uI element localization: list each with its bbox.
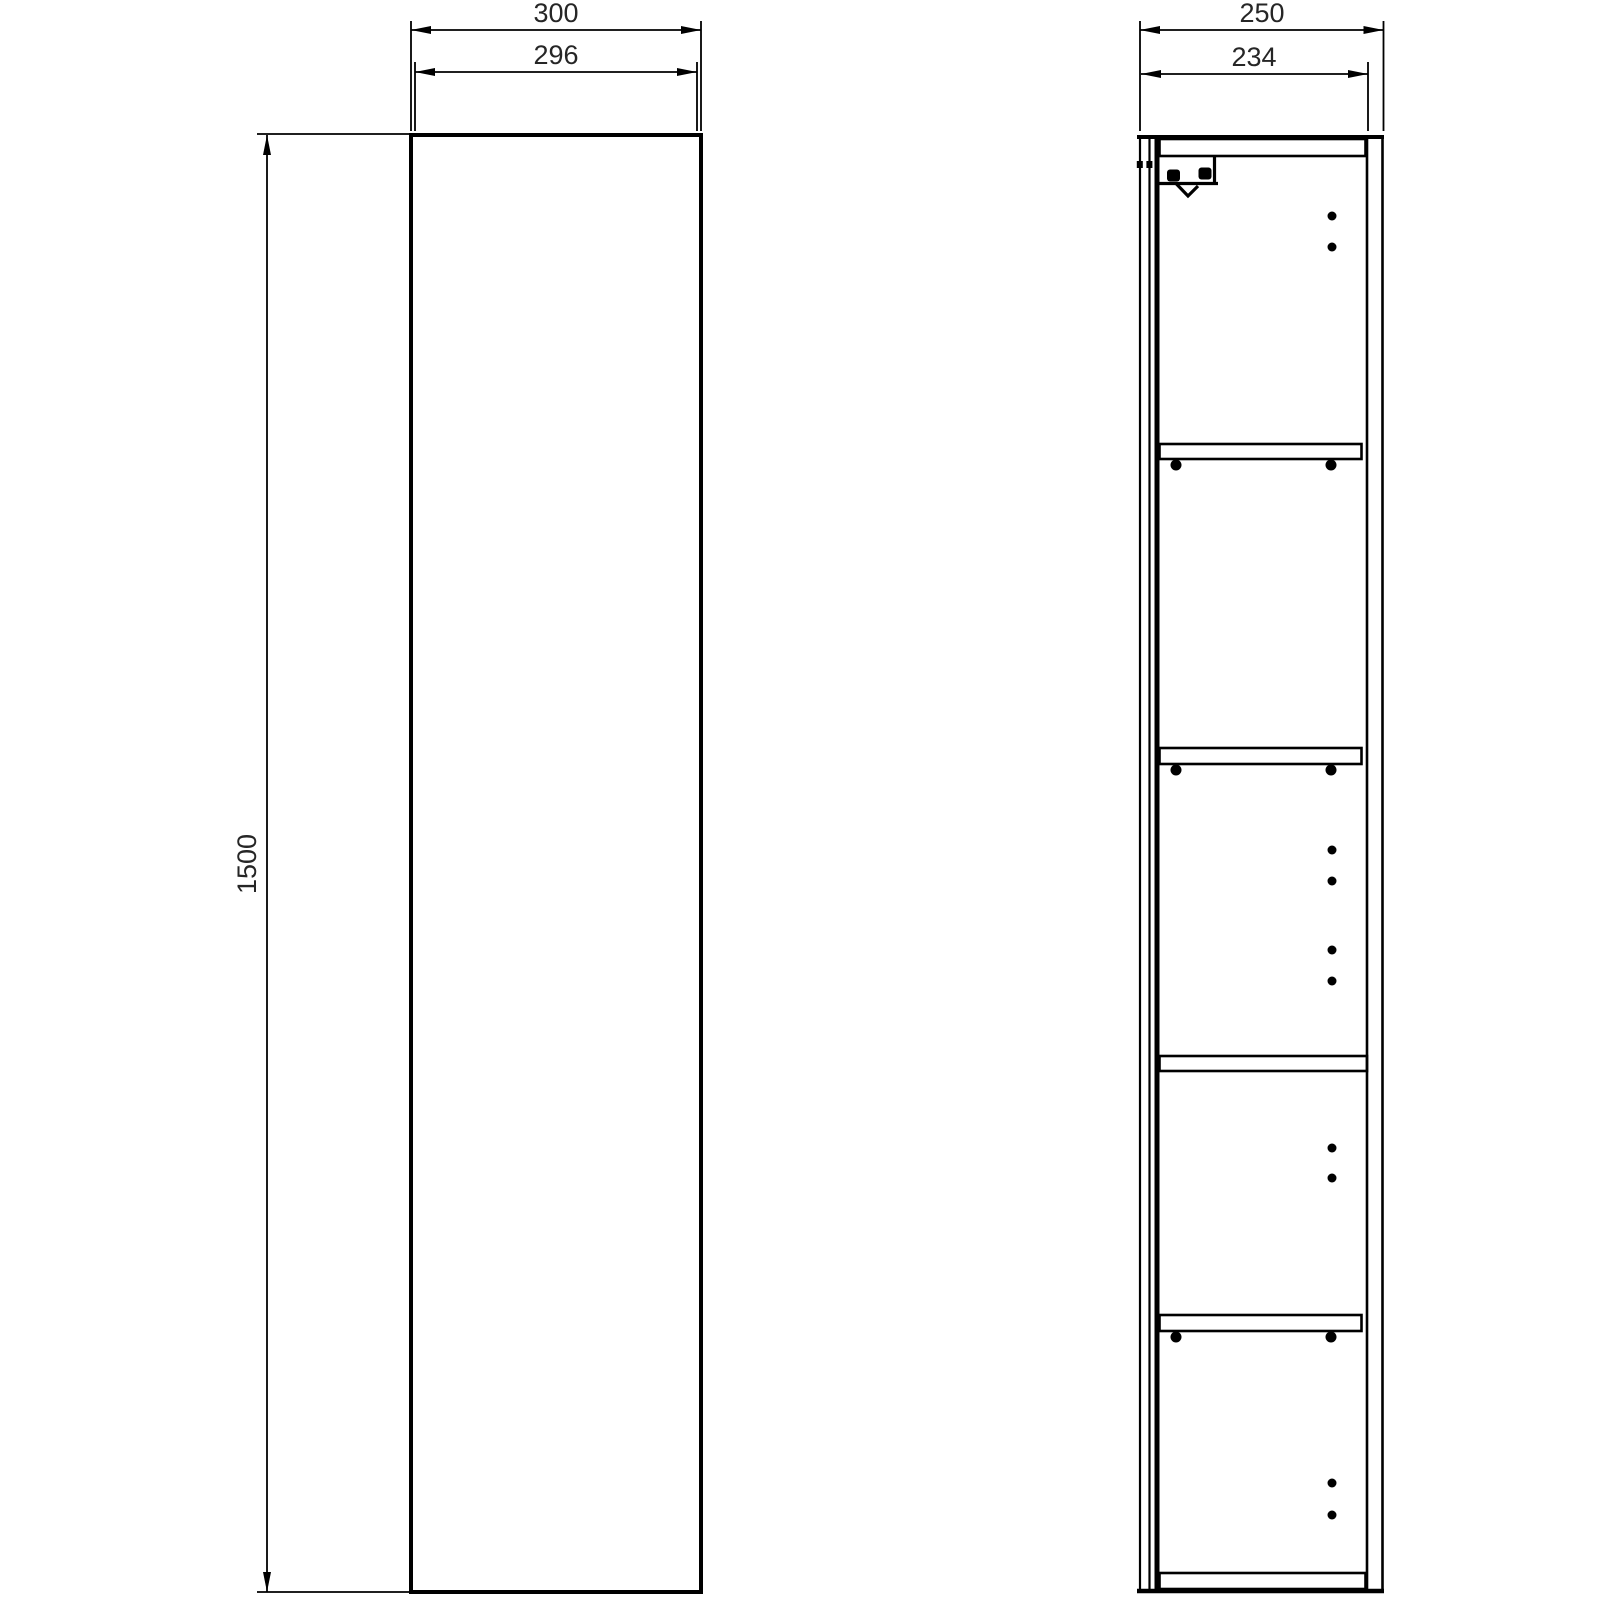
arrowhead-bottom xyxy=(263,1572,271,1592)
door-width-value: 296 xyxy=(533,40,578,70)
extension-lines xyxy=(1140,21,1384,131)
door-panel-section xyxy=(1140,137,1150,1591)
arrowhead-left xyxy=(1141,70,1161,78)
bracket-screw xyxy=(1167,170,1180,182)
shelf-pin xyxy=(1326,765,1337,776)
shelf-pin xyxy=(1326,460,1337,471)
shelf-pin xyxy=(1171,765,1182,776)
shelf-pin-holes xyxy=(1328,212,1337,1520)
pin-hole xyxy=(1328,1479,1337,1488)
shelf-pin xyxy=(1171,1332,1182,1343)
overall-depth-value: 250 xyxy=(1239,0,1284,28)
cabinet-technical-drawing: 300 296 1500 250 xyxy=(0,0,1600,1600)
arrowhead-right xyxy=(681,26,701,34)
drawing-sheet: 300 296 1500 250 xyxy=(0,0,1600,1600)
arrowhead-left xyxy=(411,26,431,34)
overall-width-value: 300 xyxy=(533,0,578,28)
shelf-pin xyxy=(1171,460,1182,471)
pin-hole xyxy=(1328,977,1337,986)
door-fixing-detail xyxy=(1137,161,1153,168)
side-section-view: 250 234 xyxy=(1137,0,1384,1591)
pin-hole xyxy=(1328,877,1337,886)
back-panel xyxy=(1367,137,1383,1591)
top-panel xyxy=(1160,139,1366,156)
internal-depth-value: 234 xyxy=(1231,42,1276,72)
bottom-panel xyxy=(1160,1573,1366,1589)
dimension-internal-depth: 234 xyxy=(1141,42,1368,131)
bracket-screw xyxy=(1199,168,1212,180)
dimension-door-width: 296 xyxy=(415,40,697,131)
arrowhead-left xyxy=(1140,26,1160,34)
arrowhead-right xyxy=(1348,70,1368,78)
shelf-3-fixed xyxy=(1160,1056,1368,1071)
shelf-1 xyxy=(1160,444,1362,471)
shelf-pin xyxy=(1326,1332,1337,1343)
wall-mount-bracket xyxy=(1159,156,1218,196)
pin-hole xyxy=(1328,846,1337,855)
arrowhead-right xyxy=(677,68,697,76)
bracket-adjustment-cam xyxy=(1176,184,1198,197)
pin-hole xyxy=(1328,243,1337,252)
extension-lines xyxy=(257,134,409,1592)
front-view-outline xyxy=(411,135,701,1592)
shelf-2 xyxy=(1160,748,1362,776)
pin-hole xyxy=(1328,946,1337,955)
pin-hole xyxy=(1328,212,1337,221)
shelf-4 xyxy=(1160,1315,1362,1343)
pin-hole xyxy=(1328,1144,1337,1153)
height-value: 1500 xyxy=(232,834,262,894)
arrowhead-right xyxy=(1364,26,1384,34)
dimension-height: 1500 xyxy=(232,134,409,1592)
pin-hole xyxy=(1328,1511,1337,1520)
arrowhead-left xyxy=(415,68,435,76)
arrowhead-top xyxy=(263,135,271,155)
extension-lines xyxy=(411,21,701,131)
pin-hole xyxy=(1328,1174,1337,1183)
front-view: 300 296 1500 xyxy=(232,0,701,1592)
